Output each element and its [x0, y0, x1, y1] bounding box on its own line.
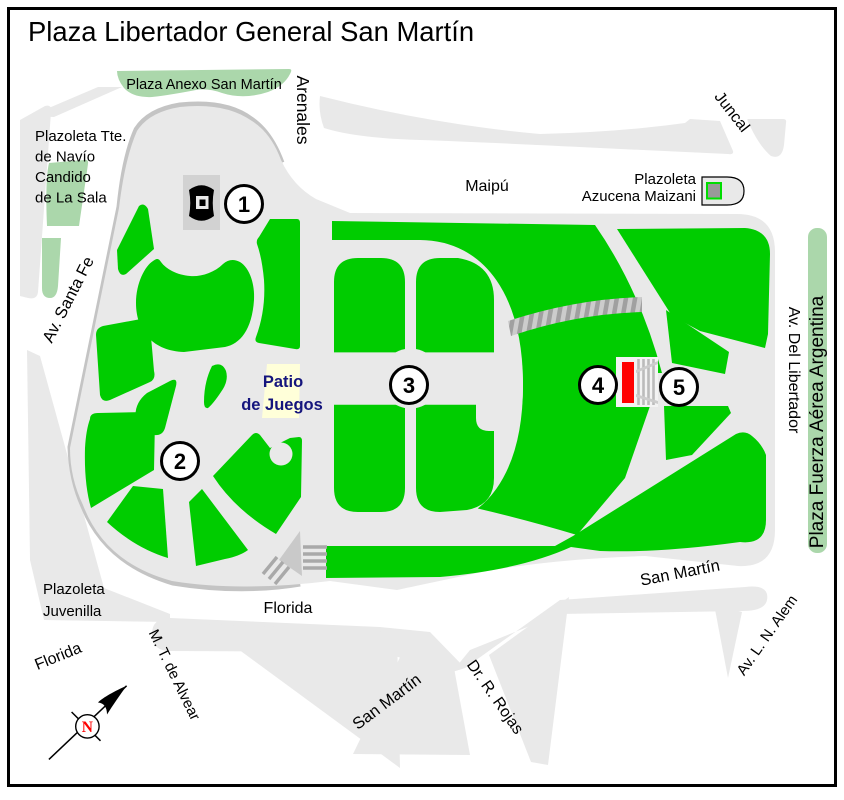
svg-text:5: 5: [673, 375, 685, 400]
svg-text:Florida: Florida: [264, 600, 313, 617]
svg-text:Juvenilla: Juvenilla: [43, 603, 102, 620]
svg-text:Plazoleta: Plazoleta: [43, 581, 105, 598]
svg-text:Arenales: Arenales: [293, 75, 313, 144]
svg-text:Plaza Libertador General San M: Plaza Libertador General San Martín: [28, 16, 474, 47]
svg-text:Maipú: Maipú: [465, 178, 509, 195]
svg-text:Azucena Maizani: Azucena Maizani: [582, 188, 696, 205]
svg-text:N: N: [82, 719, 93, 736]
svg-text:Patio: Patio: [263, 373, 303, 391]
svg-text:2: 2: [174, 449, 186, 474]
svg-text:Av. Del Libertador: Av. Del Libertador: [785, 307, 802, 434]
svg-text:3: 3: [403, 373, 415, 398]
svg-text:Candido: Candido: [35, 169, 91, 186]
svg-text:de Navío: de Navío: [35, 149, 95, 166]
svg-text:de La Sala: de La Sala: [35, 190, 107, 207]
svg-text:Plaza Anexo San Martín: Plaza Anexo San Martín: [126, 77, 282, 93]
svg-text:1: 1: [238, 192, 250, 217]
svg-text:Plaza Fuerza Aérea Argentina: Plaza Fuerza Aérea Argentina: [807, 295, 828, 548]
svg-text:Plazoleta Tte.: Plazoleta Tte.: [35, 128, 126, 145]
svg-text:Plazoleta: Plazoleta: [634, 171, 696, 188]
svg-text:de Juegos: de Juegos: [241, 396, 323, 414]
svg-text:4: 4: [592, 373, 605, 398]
